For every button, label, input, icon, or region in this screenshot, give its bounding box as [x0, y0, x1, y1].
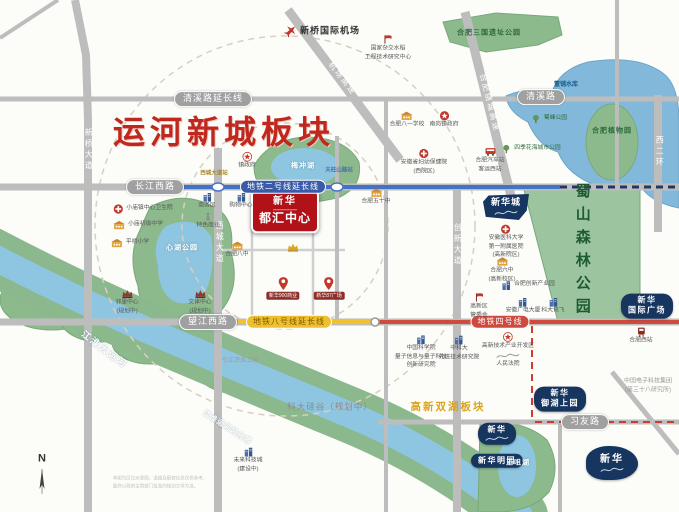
gov-icon: [439, 111, 449, 121]
poi-four-seasons-flower-park-label: 四季花海城市公园: [514, 145, 560, 153]
area-keda-silicon-valley-label: 科大硅谷（规划中）: [287, 401, 373, 412]
badge-xinhua-yuhu-upper-garden: 新华御湖上园: [534, 387, 586, 412]
poi-shopping-center-label: 购物中心: [229, 203, 252, 211]
project-badge-xinhua-duhui-center: 新华都汇中心: [251, 189, 319, 233]
flag-icon: [383, 34, 393, 44]
poi-neighborhood-center-label: (规划中): [116, 308, 137, 316]
badge-xinhua-southeast: 新华: [586, 446, 638, 480]
badge-xinhua-city-label: 新华城: [491, 197, 521, 209]
crown-icon: [287, 242, 299, 252]
road-label-chuangxin-avenue: 创新大道: [452, 223, 462, 267]
train-icon: [636, 327, 646, 337]
road-label-wangjiang-west-label: 望江西路: [179, 314, 237, 330]
pin-xinhua-900-commerce: 新华900商业: [266, 277, 299, 300]
poi-anhui-women-children-hospital: 安徽省妇幼保健院(西院区): [401, 148, 447, 175]
landmark-crown: [287, 242, 299, 252]
poi-hefei-west-bus-station-label: 客运西站: [478, 166, 501, 174]
poi-nangang-town-gov-label: 南岗镇政府: [430, 122, 459, 130]
area-keda-silicon-valley: 科大硅谷（规划中）: [287, 401, 373, 412]
poi-xiaomiao-junior-school-label: 小庙初级中学: [128, 221, 163, 229]
road-label-xinqiao-avenue-label: 新桥大道: [83, 128, 93, 172]
building-icon: [501, 280, 511, 290]
poi-anhui-women-children-hospital-label: 安徽省妇幼保健院: [401, 159, 447, 167]
poi-xiaomiao-junior-school: 小庙初级中学: [113, 220, 163, 230]
school-icon: [231, 241, 243, 251]
map-disclaimer-label: 最终以政府主管部门批准的规划文件为准。: [113, 483, 199, 490]
pin-xinhua-87-plaza: 新华87广场: [314, 277, 345, 300]
building-icon: [518, 297, 528, 307]
school-icon: [111, 238, 123, 248]
poi-hefei-bayi-school-label: 合肥八一学校: [390, 122, 425, 130]
park-botanical-garden-label-label: 合肥植物园: [592, 126, 632, 135]
compass-north: N: [37, 451, 47, 496]
poi-business-district: 商务区: [198, 192, 215, 211]
building-icon: [416, 334, 426, 344]
pin-icon: [324, 277, 334, 291]
map-disclaimer: 本图为区位示意图，道路及配套信息仅供参考，最终以政府主管部门批准的规划文件为准。: [113, 474, 208, 489]
starred-icon: [503, 332, 513, 342]
map-disclaimer-label: 本图为区位示意图，道路及配套信息仅供参考，: [113, 474, 208, 481]
location-map: 运河新城板块新华都汇中心清溪路延长线清溪路长江西路望江西路习友路地铁二号线延长线…: [0, 0, 679, 512]
project-badge-xinhua-duhui-center-label: 都汇中心: [259, 211, 311, 227]
poi-hitech-district-court-label: 人民法院: [496, 361, 519, 369]
hospital-icon: [113, 204, 123, 214]
road-label-west-2nd-ring-label: 西二环: [654, 136, 664, 169]
poi-shopping-center: 购物中心: [229, 192, 252, 211]
park-xinhu-label-label: 心湖公园: [166, 243, 198, 252]
flag-icon: [474, 292, 484, 302]
poi-hefei-no8-middle-school: 合肥八中: [225, 241, 248, 260]
water-wangju-lake: 王咀湖: [506, 458, 530, 467]
tree-icon: [531, 114, 541, 124]
poi-four-seasons-flower-park: 四季花海城市公园: [501, 144, 560, 154]
poi-xiaomiao-health-center-label: 小庙镇中心卫生院: [126, 205, 172, 213]
building-icon: [236, 192, 246, 202]
road-label-wangjiang-west: 望江西路: [179, 314, 237, 330]
road-label-qingxi-label: 清溪路: [517, 89, 565, 105]
road-label-airport-expressway: 机场高速: [326, 60, 359, 98]
poi-cas-quantum-institute-label: 中国科学院: [407, 345, 436, 353]
badge-xinhua-intl-plaza-label: 新华: [638, 296, 657, 306]
title-canal-new-city-block: 运河新城板块: [113, 112, 335, 154]
badge-xinhua-intl-plaza-label: 国际广场: [628, 306, 666, 316]
building-icon: [548, 297, 558, 307]
poi-hefei-no50-middle-school: 合肥五十中: [362, 188, 391, 207]
poi-xinqiao-intl-airport: 新桥国际机场: [284, 25, 360, 38]
compass-needle-icon: [37, 467, 47, 497]
metro-line8-extension-label: 地铁八号线延长线: [246, 315, 332, 329]
project-badge-xinhua-duhui-center-label: 新华: [273, 195, 297, 210]
poi-innovation-industrial-park: 合肥创新产业园: [501, 280, 555, 290]
poi-culture-sports-center-label: (规划中): [189, 308, 210, 316]
road-label-qingxi-extension-label: 清溪路延长线: [174, 91, 252, 107]
crownm-icon: [194, 288, 206, 298]
poi-feature-commerce-label: 特色商业: [196, 223, 219, 231]
poi-neighborhood-center: 邻里中心(规划中): [115, 288, 138, 315]
poi-anhui-broadcast-tower-label: 安徽广电大厦: [506, 308, 541, 316]
building-icon: [243, 446, 253, 456]
poi-hefei-no50-middle-school-label: 合肥五十中: [362, 199, 391, 207]
poi-hitech-district-court-label: 高新技术产业开发区: [482, 343, 534, 351]
forest-shushan-label: 蜀山森林公园: [572, 183, 592, 321]
school-icon: [496, 256, 508, 266]
poi-hitech-admin-committee-label: 管委会: [470, 312, 487, 320]
poi-anhui-broadcast-tower: 安徽广电大厦: [506, 297, 541, 316]
poi-anhui-women-children-hospital-label: (西院区): [413, 168, 434, 176]
starred-icon: [242, 152, 252, 162]
poi-future-tech-city-label: 未来科技城: [234, 457, 263, 465]
metro-line8-extension-label-label: 地铁八号线延长线: [246, 315, 332, 329]
poi-shufeng-park: 蜀峰公园: [531, 114, 567, 124]
water-canal-scenic-belt: 江淮运河风光带: [201, 409, 253, 447]
poi-neighborhood-center-label: 邻里中心: [115, 299, 138, 307]
poi-hefei-no8-middle-school-label: 合肥八中: [225, 252, 248, 260]
badge-xinhua-yuhu-upper-garden-label: 御湖上园: [541, 399, 579, 409]
station-xicheng-avenue: 西城大道站: [200, 170, 228, 177]
poi-iflytek-label: 科大讯飞: [541, 308, 564, 316]
road-label-west-2nd-ring: 西二环: [654, 136, 664, 169]
poi-ustc-advanced-institute-label: 中科大: [450, 345, 467, 353]
park-sanguo-ruins-label: 合肥三国遗址公园: [457, 28, 521, 37]
road-label-qingxi: 清溪路: [517, 89, 565, 105]
poi-xiaomiao-health-center: 小庙镇中心卫生院: [113, 204, 172, 214]
lake-meichong-label-label: 梅冲湖: [291, 161, 315, 170]
metro-line2-extension-label: 地铁二号线延长线: [240, 180, 326, 194]
plane-icon: [284, 25, 297, 38]
road-label-ring-expressway-label: 合肥绕城高速: [477, 73, 502, 134]
project-yinjiang-jihuai-label: 引江济淮工程: [222, 358, 258, 366]
poi-town-government-label: 镇政府: [238, 163, 255, 171]
badge-xinhua-script-label: 新华: [488, 425, 507, 435]
road-label-xinqiao-avenue: 新桥大道: [83, 128, 93, 172]
badge-xinhua-yuhu-upper-garden-label: 新华: [551, 389, 570, 399]
poi-hitech-admin-committee: 高新区管委会: [470, 292, 487, 319]
poi-hybrid-rice-research-center-label: 国家杂交水稻: [371, 45, 406, 53]
water-jianghuai-grand-canal-label: 江淮大运河: [79, 329, 130, 371]
poi-culture-sports-center: 文体中心(规划中): [188, 288, 211, 315]
badge-xinhua-intl-plaza: 新华国际广场: [621, 294, 673, 319]
poi-cetc-38th-institute-label: 中国电子科技集团: [624, 379, 672, 387]
poi-ustc-advanced-institute: 中科大先进技术研究院: [439, 334, 480, 361]
area-hitech-twin-lakes-block-label: 高新双湖板块: [411, 401, 486, 415]
hospital-icon: [501, 224, 511, 234]
school-icon: [370, 188, 382, 198]
poi-innovation-industrial-park-label: 合肥创新产业园: [514, 281, 555, 289]
pin-xinhua-900-commerce-label: 新华900商业: [266, 292, 299, 300]
poi-hybrid-rice-research-center: 国家杂交水稻工程技术研究中心: [365, 34, 411, 61]
poi-hefei-west-railway-station-label: 合肥西站: [629, 338, 652, 346]
building-icon: [202, 192, 212, 202]
station-xicheng-avenue-label: 西城大道站: [200, 170, 228, 177]
water-dongpu-reservoir-label: 董铺水库: [554, 82, 578, 90]
statue-icon: [203, 212, 212, 222]
bus-icon: [484, 146, 496, 156]
poi-hefei-west-bus-station: 合肥汽车站客运西站: [476, 146, 505, 173]
poi-ustc-advanced-institute-label: 先进技术研究院: [439, 354, 480, 362]
school-icon: [401, 111, 413, 121]
water-wangju-lake-label: 王咀湖: [506, 458, 530, 467]
water-dongpu-reservoir: 董铺水库: [554, 82, 578, 90]
poi-cetc-38th-institute-label: (第三十八研究所): [625, 388, 671, 396]
pin-icon: [278, 277, 288, 291]
building-icon: [454, 334, 464, 344]
road-label-qingxi-extension: 清溪路延长线: [174, 91, 252, 107]
metro-line2-extension-label-label: 地铁二号线延长线: [240, 180, 326, 194]
poi-pingqiao-primary-school-label: 平桥小学: [126, 239, 149, 247]
road-label-xiyou-label: 习友路: [561, 414, 609, 430]
poi-hitech-district-court: 高新技术产业开发区人民法院: [482, 332, 534, 368]
poi-hitech-admin-committee-label: 高新区: [470, 303, 487, 311]
school-icon: [113, 220, 125, 230]
poi-nangang-town-gov: 南岗镇政府: [430, 111, 459, 130]
project-yinjiang-jihuai: 引江济淮工程: [222, 358, 258, 366]
compass-north-label: N: [38, 451, 46, 465]
poi-future-tech-city-label: (建设中): [237, 466, 258, 474]
road-label-chuangxin-avenue-label: 创新大道: [452, 223, 462, 267]
badge-xinhua-city: 新华城: [483, 194, 529, 220]
road-label-ring-expressway: 合肥绕城高速: [477, 73, 502, 134]
poi-hefei-no6-middle-school-label: 合肥六中: [490, 267, 513, 275]
water-jianghuai-grand-canal: 江淮大运河: [79, 329, 130, 371]
poi-iflytek: 科大讯飞: [541, 297, 564, 316]
poi-feature-commerce: 特色商业: [196, 212, 219, 231]
poi-hefei-west-railway-station: 合肥西站: [629, 327, 652, 346]
poi-business-district-label: 商务区: [198, 203, 215, 211]
poi-xinqiao-intl-airport-label: 新桥国际机场: [300, 25, 360, 37]
station-tianzhushan-road-label: 天柱山路站: [325, 167, 353, 174]
park-sanguo-ruins-label-label: 合肥三国遗址公园: [457, 28, 521, 37]
road-label-changjiang-west: 长江西路: [126, 179, 184, 195]
park-xinhu-label: 心湖公园: [166, 243, 198, 252]
hospital-icon: [419, 148, 429, 158]
poi-hybrid-rice-research-center-label: 工程技术研究中心: [365, 54, 411, 62]
park-botanical-garden-label: 合肥植物园: [592, 126, 632, 135]
title-canal-new-city-block-label: 运河新城板块: [113, 112, 335, 154]
poi-shufeng-park-label: 蜀峰公园: [544, 115, 567, 123]
pin-xinhua-87-plaza-label: 新华87广场: [314, 292, 345, 300]
water-canal-scenic-belt-label: 江淮运河风光带: [201, 409, 253, 447]
map-labels-layer: 运河新城板块新华都汇中心清溪路延长线清溪路长江西路望江西路习友路地铁二号线延长线…: [0, 0, 679, 512]
poi-culture-sports-center-label: 文体中心: [188, 299, 211, 307]
badge-xinhua-script: 新华: [478, 423, 516, 445]
poi-hefei-west-bus-station-label: 合肥汽车站: [476, 157, 505, 165]
poi-pingqiao-primary-school: 平桥小学: [111, 238, 149, 248]
poi-cetc-38th-institute: 中国电子科技集团(第三十八研究所): [624, 379, 672, 396]
poi-town-government: 镇政府: [238, 152, 255, 171]
forest-shushan-label-label: 蜀山森林公园: [572, 183, 592, 321]
badge-xinhua-southeast-label: 新华: [600, 453, 624, 466]
station-tianzhushan-road: 天柱山路站: [325, 167, 353, 174]
lake-meichong-label: 梅冲湖: [291, 161, 315, 170]
poi-future-tech-city: 未来科技城(建设中): [234, 446, 263, 473]
area-hitech-twin-lakes-block: 高新双湖板块: [411, 401, 486, 415]
road-label-changjiang-west-label: 长江西路: [126, 179, 184, 195]
poi-anhui-medical-univ-hospital-label: 第一附属医院: [489, 244, 524, 252]
poi-anhui-medical-univ-hospital: 安徽医科大学第一附属医院(高新院区): [489, 224, 524, 260]
road-label-xiyou: 习友路: [561, 414, 609, 430]
poi-anhui-medical-univ-hospital-label: 安徽医科大学: [489, 235, 524, 243]
poi-cas-quantum-institute-label: 创新研究院: [407, 362, 436, 370]
crownm-icon: [121, 288, 133, 298]
poi-hefei-bayi-school: 合肥八一学校: [390, 111, 425, 130]
road-label-airport-expressway-label: 机场高速: [326, 60, 359, 98]
